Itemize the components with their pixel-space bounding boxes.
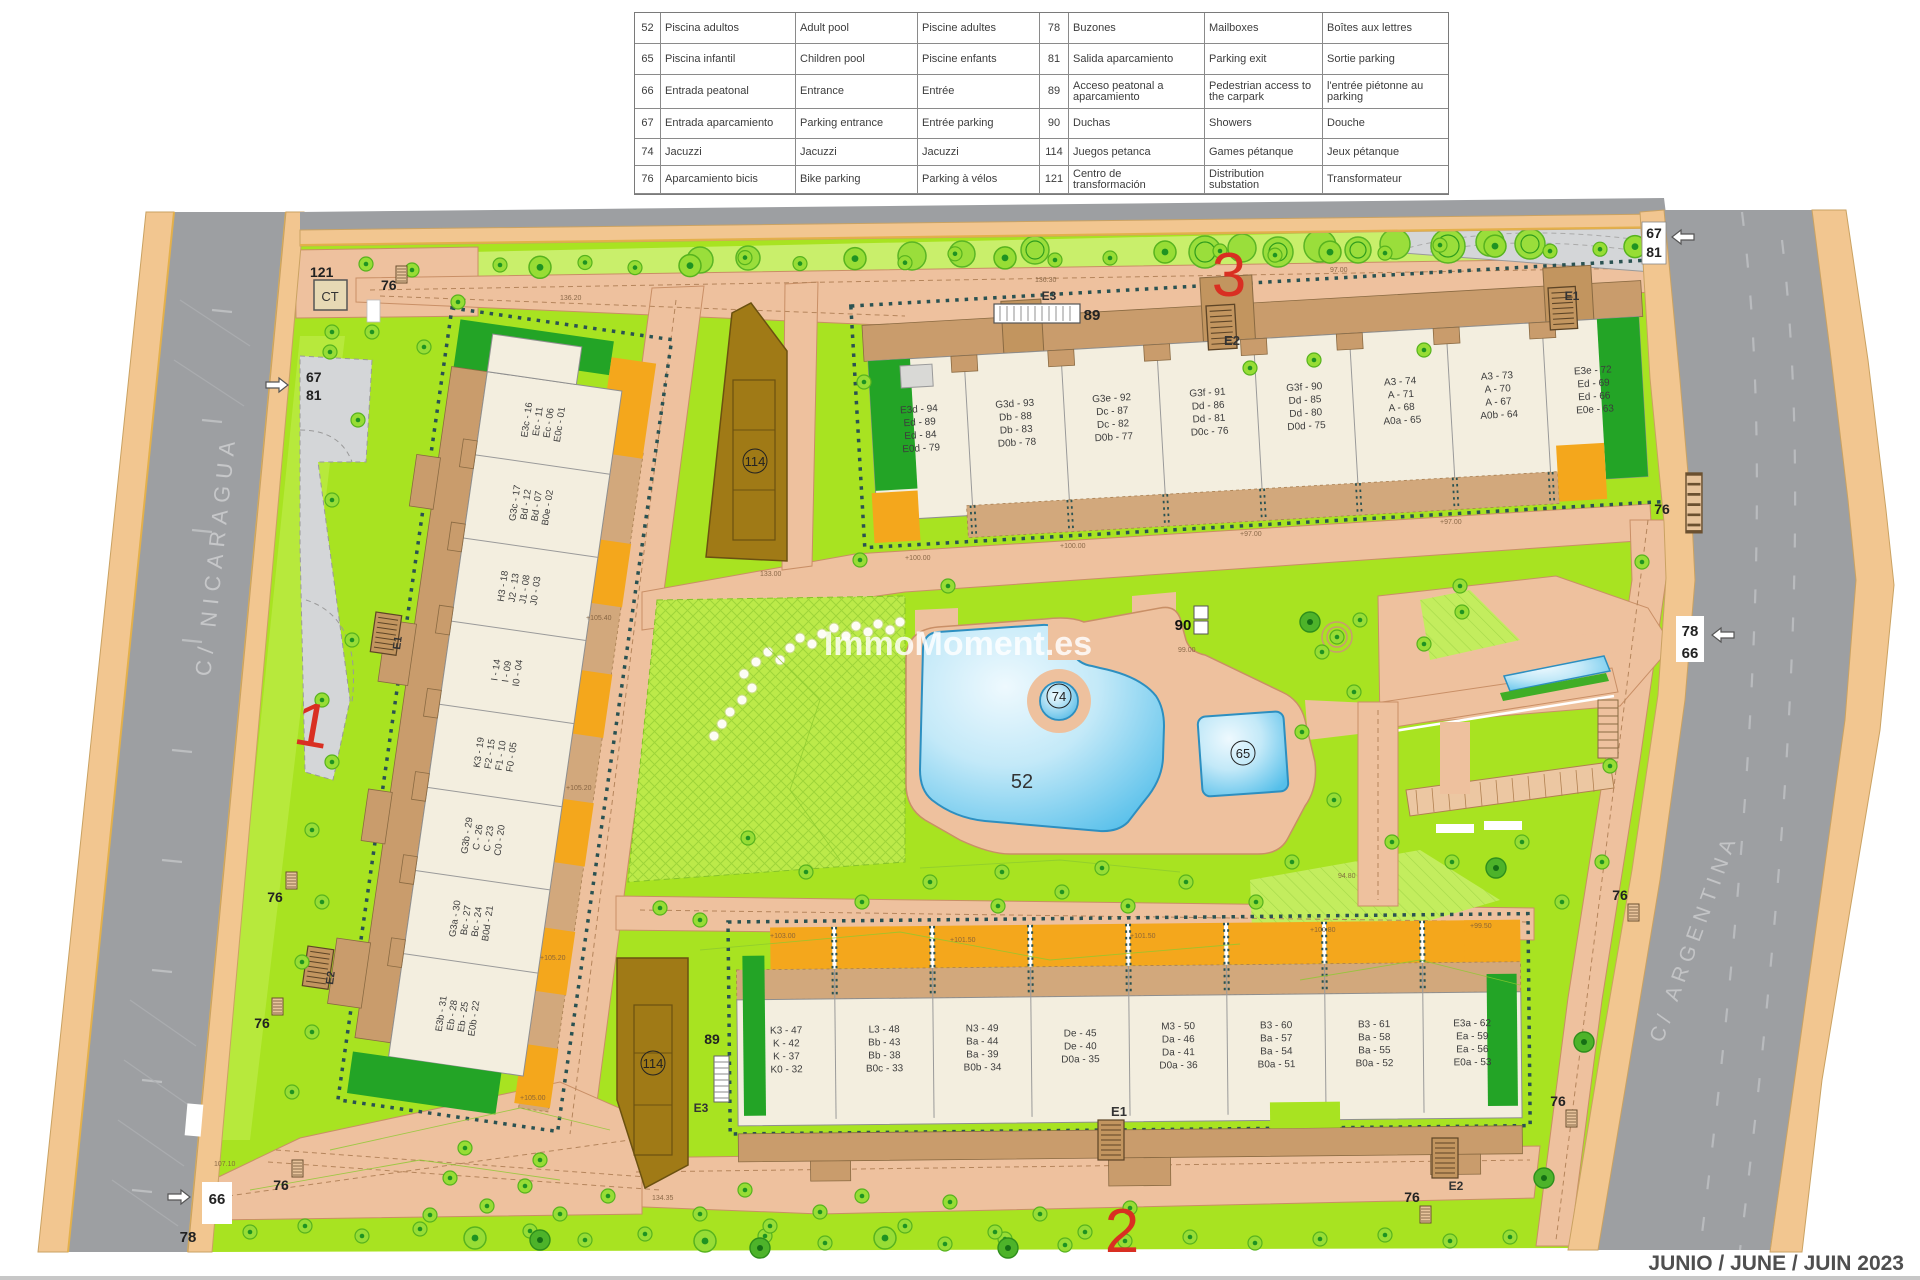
svg-text:E3: E3 xyxy=(694,1101,709,1115)
svg-text:E1: E1 xyxy=(391,635,405,650)
svg-text:+101.50: +101.50 xyxy=(950,937,976,944)
svg-text:81: 81 xyxy=(306,387,322,403)
svg-text:+100.80: +100.80 xyxy=(1310,927,1336,934)
svg-text:+105.20: +105.20 xyxy=(540,955,566,962)
svg-text:E1: E1 xyxy=(1565,289,1580,303)
svg-text:66: 66 xyxy=(1682,645,1699,662)
svg-text:76: 76 xyxy=(273,1177,289,1193)
svg-text:2: 2 xyxy=(1105,1197,1139,1266)
svg-text:66: 66 xyxy=(209,1191,226,1208)
svg-text:+100.00: +100.00 xyxy=(905,555,931,562)
svg-text:E2: E2 xyxy=(1449,1179,1464,1193)
svg-text:76: 76 xyxy=(254,1015,270,1031)
svg-text:E3: E3 xyxy=(1042,289,1057,303)
svg-text:134.35: 134.35 xyxy=(652,1195,674,1202)
svg-text:76: 76 xyxy=(1612,887,1628,903)
svg-text:89: 89 xyxy=(704,1031,720,1047)
svg-text:74: 74 xyxy=(1052,689,1066,704)
svg-text:136.30: 136.30 xyxy=(1035,277,1057,284)
svg-text:E3b - 31Eb - 28Eb - 25E0b - 22: E3b - 31Eb - 28Eb - 25E0b - 22 xyxy=(434,995,483,1037)
svg-text:+97.00: +97.00 xyxy=(1440,519,1462,526)
svg-text:90: 90 xyxy=(1175,617,1192,634)
svg-text:3: 3 xyxy=(1212,241,1246,310)
svg-text:67: 67 xyxy=(1646,225,1662,241)
svg-text:67: 67 xyxy=(306,369,322,385)
svg-text:G3c - 17Bd - 12Bd - 07B0e - 02: G3c - 17Bd - 12Bd - 07B0e - 02 xyxy=(507,484,556,526)
svg-text:78: 78 xyxy=(1682,623,1699,640)
svg-text:107.10: 107.10 xyxy=(214,1161,236,1168)
svg-text:De - 45De - 40D0a - 35: De - 45De - 40D0a - 35 xyxy=(1061,1028,1100,1065)
svg-text:76: 76 xyxy=(1404,1189,1420,1205)
svg-text:76: 76 xyxy=(1654,501,1670,517)
svg-text:99.00: 99.00 xyxy=(1178,647,1196,654)
svg-text:97.00: 97.00 xyxy=(1330,267,1348,274)
svg-text:E2: E2 xyxy=(324,970,338,985)
svg-text:E3c - 16Ec - 11Ec - 06E0c - 01: E3c - 16Ec - 11Ec - 06E0c - 01 xyxy=(519,402,568,443)
svg-text:G3a - 30Bc - 27Bc - 24B0d - 21: G3a - 30Bc - 27Bc - 24B0d - 21 xyxy=(447,900,496,943)
svg-text:121: 121 xyxy=(310,264,334,280)
svg-text:+103.00: +103.00 xyxy=(770,933,796,940)
svg-text:76: 76 xyxy=(267,889,283,905)
svg-text:+101.50: +101.50 xyxy=(1130,933,1156,940)
svg-text:136.20: 136.20 xyxy=(560,295,582,302)
svg-text:ImmoMoment.es: ImmoMoment.es xyxy=(824,625,1092,663)
svg-text:+105.20: +105.20 xyxy=(566,785,592,792)
svg-text:+99.50: +99.50 xyxy=(1470,923,1492,930)
svg-text:+105.00: +105.00 xyxy=(520,1095,546,1102)
svg-text:E1: E1 xyxy=(1111,1104,1127,1119)
svg-text:+100.00: +100.00 xyxy=(1060,543,1086,550)
svg-text:76: 76 xyxy=(381,277,397,293)
svg-text:114: 114 xyxy=(745,454,766,469)
svg-text:52: 52 xyxy=(1011,771,1033,793)
svg-text:+105.40: +105.40 xyxy=(586,615,612,622)
svg-text:65: 65 xyxy=(1236,746,1250,761)
svg-text:76: 76 xyxy=(1550,1093,1566,1109)
svg-text:E2: E2 xyxy=(1224,333,1240,348)
svg-text:81: 81 xyxy=(1646,244,1662,260)
svg-text:114: 114 xyxy=(643,1056,664,1071)
svg-text:CT: CT xyxy=(321,289,338,304)
svg-text:89: 89 xyxy=(1084,307,1101,324)
svg-text:78: 78 xyxy=(180,1229,197,1246)
svg-text:+97.00: +97.00 xyxy=(1240,531,1262,538)
svg-text:133.00: 133.00 xyxy=(760,571,782,578)
svg-text:94.80: 94.80 xyxy=(1338,873,1356,880)
